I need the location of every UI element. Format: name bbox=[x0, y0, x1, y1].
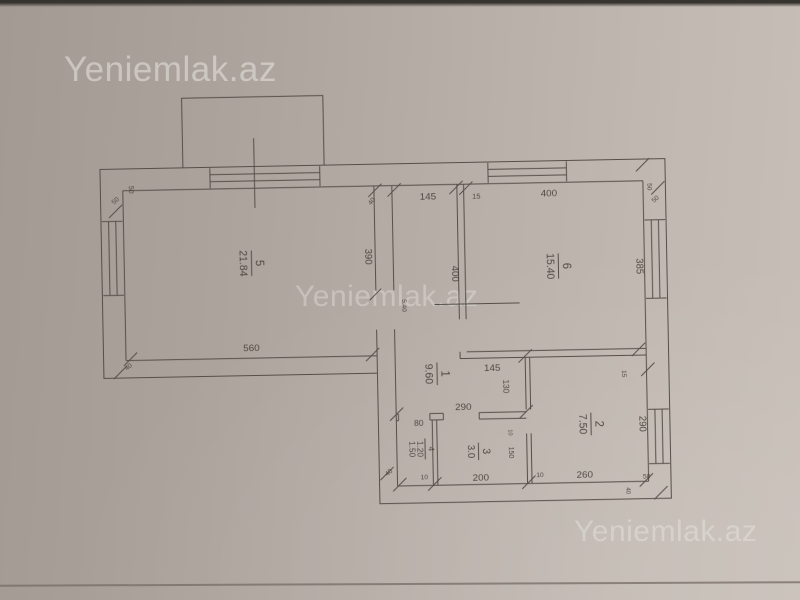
dim-hall-top: 145 bbox=[420, 192, 437, 203]
window-room5-top bbox=[210, 166, 320, 188]
dim-hall-wall: 130 bbox=[501, 379, 511, 393]
room5-hall-wall bbox=[374, 186, 398, 487]
dimension-extension-line bbox=[434, 303, 519, 305]
dim-hall-lower: 290 bbox=[455, 402, 472, 413]
dim-50-top-right-a: 50 bbox=[645, 183, 652, 191]
dim-room2-bottom: 260 bbox=[577, 470, 594, 481]
dim-room5-width: 560 bbox=[243, 343, 260, 354]
dim-50-top-left-diag: 50 bbox=[111, 196, 122, 206]
dim-room5-height: 390 bbox=[362, 249, 373, 266]
dim-room2-side: 290 bbox=[636, 416, 647, 433]
dimension-ticks bbox=[108, 158, 671, 510]
dim-40-bottom-section: 40 bbox=[384, 468, 395, 478]
dim-10-room3: 10 bbox=[507, 429, 513, 435]
room-2-area: 7.50 bbox=[576, 414, 589, 435]
room-label-6: 6 15.40 bbox=[543, 253, 572, 280]
dim-room6-side: 385 bbox=[633, 258, 644, 274]
room-3-area: 3.0 bbox=[465, 445, 476, 459]
room6-bottom-wall bbox=[460, 348, 646, 358]
dim-hall-side: 400 bbox=[449, 266, 460, 283]
room-1-number: 1 bbox=[438, 370, 450, 377]
room-1-area: 9.60 bbox=[422, 364, 435, 385]
balcony-outline bbox=[182, 96, 325, 168]
dim-10-room2: 10 bbox=[536, 472, 544, 479]
room-5-number: 5 bbox=[253, 260, 265, 267]
dim-room6-top: 400 bbox=[541, 189, 558, 200]
inner-top-wall bbox=[123, 181, 643, 191]
dim-50-bottom-right: 50 bbox=[643, 474, 651, 481]
room-3-number: 3 bbox=[480, 448, 492, 454]
dim-hall-bottom: 145 bbox=[484, 363, 501, 374]
photo-top-edge bbox=[0, 0, 800, 7]
right-inner-wall bbox=[643, 181, 649, 481]
room-2-number: 2 bbox=[592, 421, 604, 428]
room-4-area-extra: 1.50 bbox=[407, 441, 417, 458]
dim-40-hall-wall: 40 bbox=[367, 196, 377, 206]
window-room5-left bbox=[102, 221, 124, 295]
dim-50-top-right-diag: 50 bbox=[651, 194, 662, 204]
room-label-5: 5 21.84 bbox=[237, 250, 266, 277]
photographed-floor-plan: Yeniemlak.az Yeniemlak.az Yeniemlak.az bbox=[0, 0, 800, 600]
dim-40-bottom-left: 40 bbox=[124, 362, 135, 372]
dim-right-wall-15: 15 bbox=[620, 370, 627, 378]
room5-walls bbox=[123, 186, 377, 361]
room3-room4-wall bbox=[432, 420, 438, 485]
window-room2-right bbox=[648, 409, 670, 464]
watermark-bottom-right: Yeniemlak.az bbox=[574, 515, 757, 549]
hall-room2-wall bbox=[525, 357, 532, 483]
balcony-center-line bbox=[254, 138, 255, 208]
window-room6-top bbox=[488, 161, 567, 183]
window-room6-right bbox=[645, 220, 667, 299]
room-5-area: 21.84 bbox=[237, 250, 250, 276]
outer-walls bbox=[100, 159, 671, 509]
dim-top-wall-15: 15 bbox=[472, 192, 481, 201]
dim-40-bottom-right: 40 bbox=[624, 487, 631, 494]
room-4-number: 4 bbox=[426, 446, 436, 451]
dim-10-room4: 10 bbox=[421, 474, 429, 481]
room-6-number: 6 bbox=[560, 263, 572, 270]
dim-room3-side: 150 bbox=[507, 447, 514, 459]
dim-50-top-left: 50 bbox=[127, 186, 134, 194]
room-label-1: 1 9.60 bbox=[422, 362, 451, 385]
dim-room5-door: 5.40 bbox=[400, 299, 407, 312]
dim-room3-bottom: 200 bbox=[473, 472, 490, 483]
room-6-area: 15.40 bbox=[543, 253, 556, 279]
watermark-top-left: Yeniemlak.az bbox=[64, 50, 277, 90]
room-label-3: 3 3.0 bbox=[465, 442, 493, 460]
floor-plan: 5 21.84 6 15.40 1 9.60 2 7.50 3 3.0 4 1.… bbox=[94, 85, 676, 514]
room-label-2: 2 7.50 bbox=[576, 412, 605, 435]
paper-edge-line bbox=[0, 581, 800, 587]
dim-room4-top: 80 bbox=[414, 418, 424, 428]
